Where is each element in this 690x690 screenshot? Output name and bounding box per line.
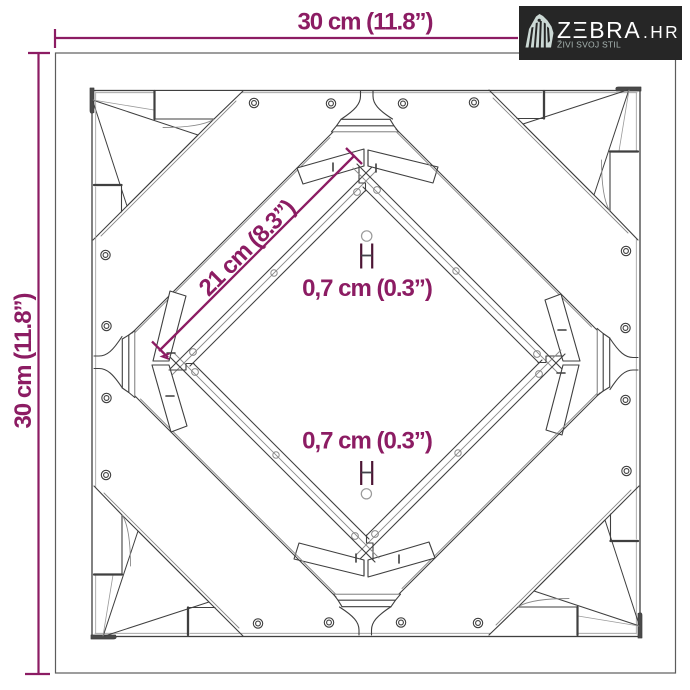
svg-text:30 cm (11.8”): 30 cm (11.8”) <box>297 9 432 36</box>
svg-text:0,7 cm (0.3”): 0,7 cm (0.3”) <box>302 428 432 455</box>
svg-text:0,7 cm (0.3”): 0,7 cm (0.3”) <box>302 275 432 302</box>
svg-text:.HR: .HR <box>643 22 680 42</box>
svg-text:30 cm (11.8”): 30 cm (11.8”) <box>10 293 37 428</box>
svg-text:ŽIVI SVOJ STIL: ŽIVI SVOJ STIL <box>557 40 621 50</box>
